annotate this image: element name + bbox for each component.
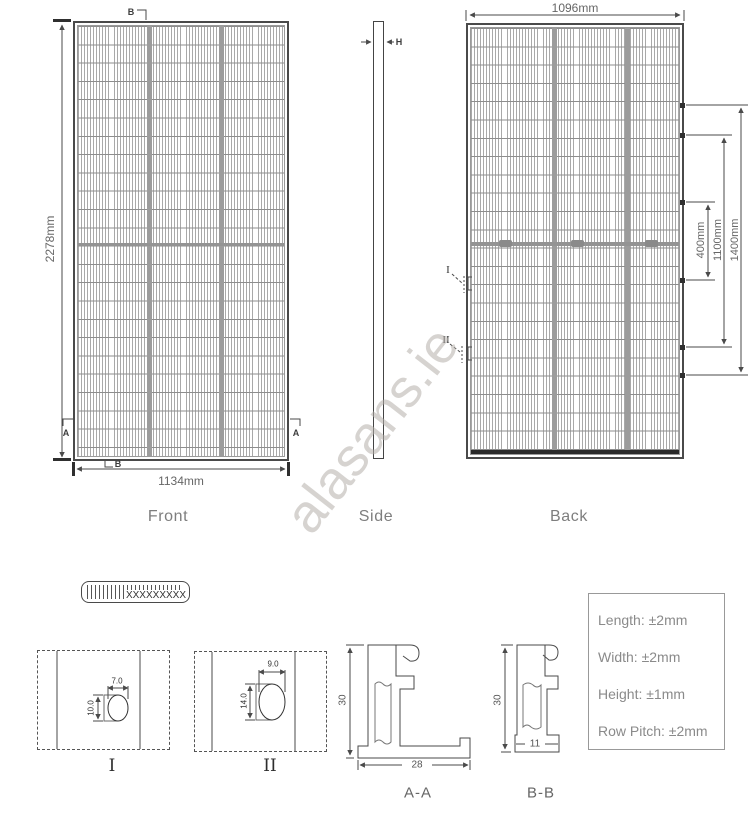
back-width-dimension: 1096mm — [552, 1, 599, 15]
technical-drawing-canvas: Length: ±2mm Width: ±2mm Height: ±1mm Ro… — [0, 0, 754, 820]
section-bb-width: 11 — [530, 739, 540, 750]
side-thickness-label: H — [396, 37, 403, 47]
back-view-label: Back — [550, 508, 588, 526]
detail-2-hole-height: 14.0 — [240, 693, 249, 709]
detail-1-hole-height: 10.0 — [87, 700, 96, 716]
detail-1-hole-width: 7.0 — [111, 677, 122, 686]
back-dim-400: 400mm — [695, 222, 707, 259]
front-cut-a-right-label: A — [293, 428, 300, 438]
section-bb-height: 30 — [493, 694, 504, 705]
section-aa-height: 30 — [338, 694, 349, 705]
front-cut-b-top-label: B — [128, 7, 135, 17]
front-cut-a-left-label: A — [63, 428, 70, 438]
section-bb-label: B-B — [527, 785, 555, 802]
section-aa-label: A-A — [404, 785, 432, 802]
detail-2-label: II — [263, 756, 276, 776]
side-view-label: Side — [359, 508, 393, 526]
back-dim-1100: 1100mm — [712, 219, 724, 261]
front-height-dimension: 2278mm — [43, 216, 57, 263]
detail-2-hole-width: 9.0 — [267, 660, 278, 669]
back-detail-1-marker: I — [446, 264, 450, 276]
detail-1-label: I — [109, 756, 116, 776]
dimension-lines-layer — [0, 0, 754, 820]
back-dim-1400: 1400mm — [729, 219, 741, 262]
section-aa-width: 28 — [411, 760, 422, 771]
back-detail-2-marker: II — [442, 334, 449, 346]
front-view-label: Front — [148, 508, 188, 526]
front-cut-b-bottom-label: B — [115, 459, 122, 469]
front-width-dimension: 1134mm — [158, 474, 204, 488]
